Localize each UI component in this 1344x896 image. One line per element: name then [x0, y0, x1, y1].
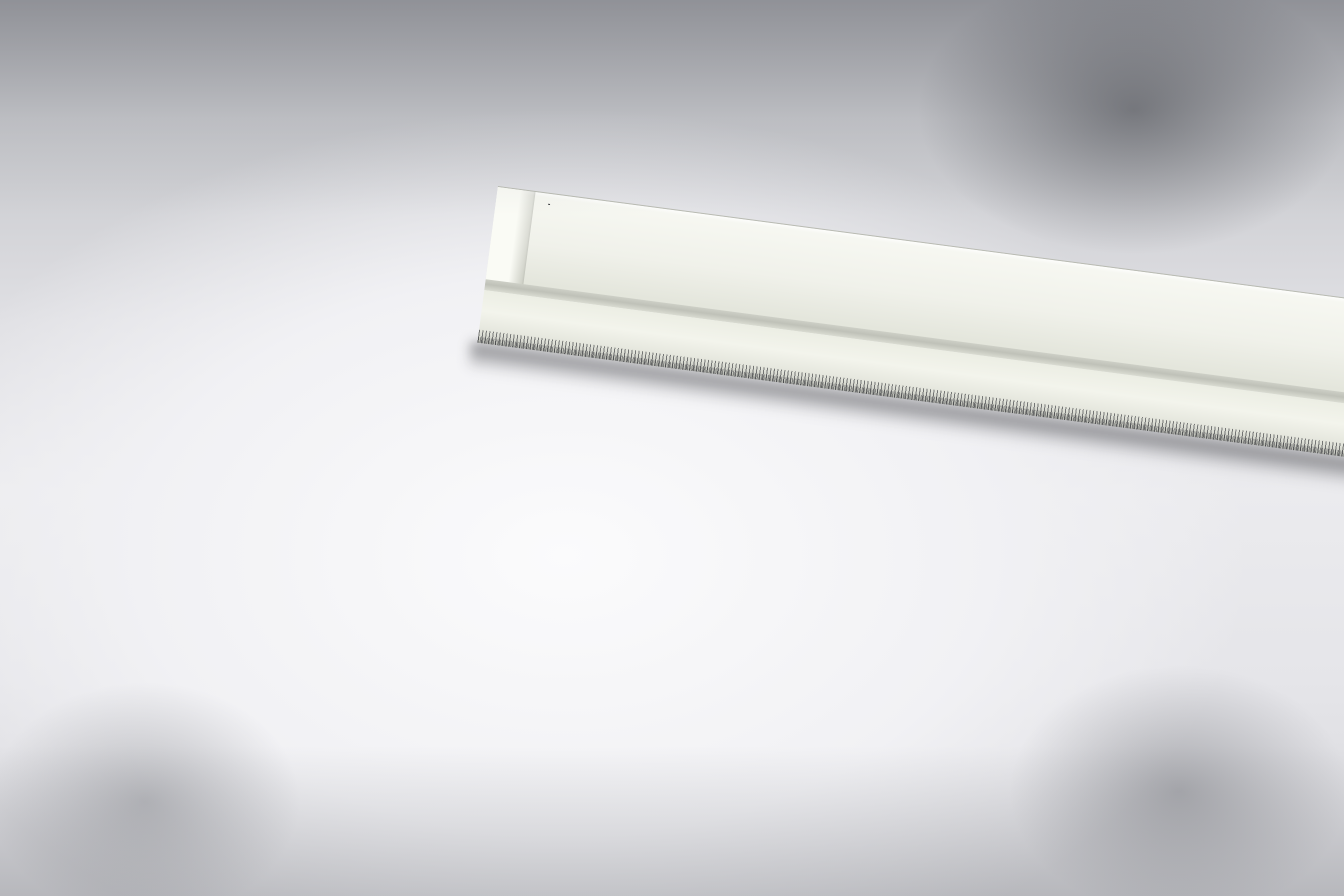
ruler-half-fraction — [548, 204, 550, 205]
photo-of-site-plan — [0, 0, 1344, 896]
fraction-denominator — [548, 204, 550, 205]
